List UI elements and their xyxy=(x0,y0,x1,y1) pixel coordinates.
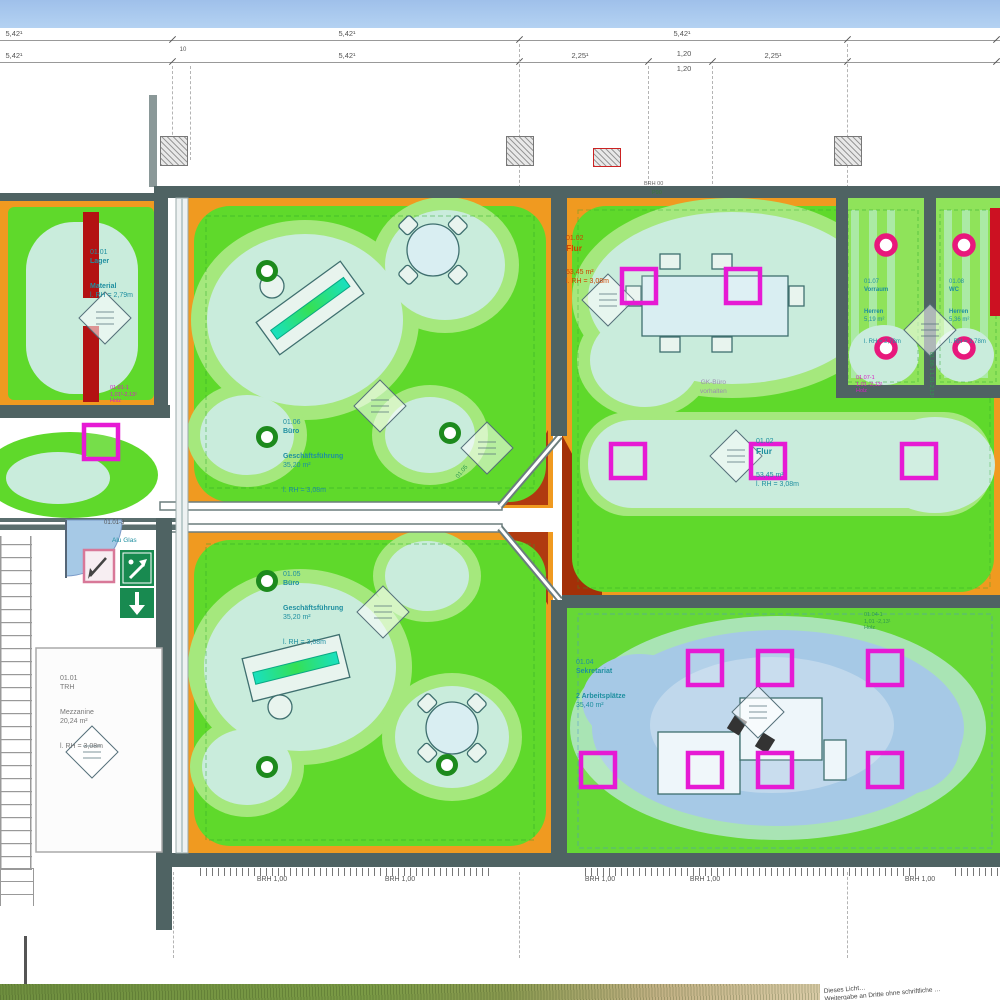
luminaire-donut-green xyxy=(259,263,276,280)
luminaire-square xyxy=(758,651,792,685)
extension-line xyxy=(519,44,520,198)
round-table xyxy=(426,702,478,754)
site-photo-strip xyxy=(0,984,820,1000)
stair-treads xyxy=(0,536,32,870)
dim-label: 5,42¹ xyxy=(338,29,355,38)
note-brh00: BRH 00 xyxy=(644,180,663,189)
luminaire-square xyxy=(868,753,902,787)
window-sill-label: BRH 1,00 xyxy=(905,876,935,883)
wall-material-label: Alu Glas xyxy=(112,537,137,546)
section-marker-red xyxy=(593,148,621,167)
wall-luminaire-pen xyxy=(84,550,114,582)
door-tag: 01.01-11,01¹-2,13¹Holz xyxy=(110,372,172,418)
extension-line xyxy=(648,66,649,184)
room-label-buero2: 01.05Büro Geschäftsführung35,20 m² l. RH… xyxy=(283,554,343,665)
dim-label: 5,42¹ xyxy=(5,51,22,60)
dim-label: 2,25¹ xyxy=(571,51,588,60)
window-sill-label: BRH 1,00 xyxy=(585,876,615,883)
luminaire-donut-green xyxy=(259,573,276,590)
chair xyxy=(268,695,292,719)
room-label-buero1: 01.06Büro Geschäftsführung35,20 m² l. RH… xyxy=(283,402,343,513)
luminaire-square xyxy=(688,753,722,787)
note-p90: P90 xyxy=(652,189,662,198)
dim-line-1 xyxy=(0,40,1000,41)
luminaire-square xyxy=(758,753,792,787)
stair-treads-lower xyxy=(0,868,34,906)
luminaire-square xyxy=(581,753,615,787)
window-sill-label: BRH 1,00 xyxy=(257,876,287,883)
lighting-plan-screenshot: 5,42¹ 5,42¹ 5,42¹ 5,42¹ 10 5,42¹ 2,25¹ 1… xyxy=(0,0,1000,1000)
window-sill-comb xyxy=(585,868,920,876)
room-label-vorraum: 01.07Vorraum Herren5,19 m² l. RH = 2,78m xyxy=(864,264,901,362)
luminaire-donut-green xyxy=(259,429,276,446)
luminaire-donut-green xyxy=(442,425,459,442)
stair-wall-lower xyxy=(156,868,172,930)
wall-stub xyxy=(149,95,157,187)
luminaire-donut-green xyxy=(439,757,456,774)
door-tag-vertical: 01.08-1 1,01-2,13¹ xyxy=(910,352,953,397)
extension-line xyxy=(847,872,848,958)
room-buero2-fill xyxy=(188,530,553,854)
dim-label: 1,20 xyxy=(677,64,692,73)
dim-label: 1,20 xyxy=(677,49,692,58)
window-sill-label: BRH 1,00 xyxy=(385,876,415,883)
section-marker xyxy=(834,136,862,166)
section-marker xyxy=(506,136,534,166)
watermark-note: Dieses Licht…Weitergabe an Dritte ohne s… xyxy=(822,963,942,1000)
floor-plan xyxy=(0,180,1000,870)
room-label-flur-top: 01.02Flur 53,45 m²l. RH = 3,08m xyxy=(566,218,609,303)
note-gk-buero: GK-Bürovorhalten xyxy=(700,362,727,413)
luminaire-donut-green xyxy=(259,759,276,776)
luminaire-square xyxy=(902,444,936,478)
luminaire-square xyxy=(84,425,118,459)
extension-line xyxy=(519,872,520,958)
left-corridor-fill xyxy=(0,432,158,518)
section-marker xyxy=(160,136,188,166)
room-label-lager: 01.01Lager Materiall. RH = 2,79m xyxy=(90,232,133,317)
exit-sign-runner xyxy=(120,550,154,586)
extension-line xyxy=(190,66,191,160)
door-leaf-red xyxy=(990,208,1000,316)
door-tag: 01.04-11,01 -2,13¹Holz xyxy=(864,599,926,645)
wall-tag: 01.01-3 xyxy=(104,519,124,528)
dim-line-2 xyxy=(0,62,1000,63)
luminaire-square xyxy=(726,269,760,303)
shelf-bar xyxy=(83,326,99,402)
luminaire-square xyxy=(611,444,645,478)
extension-line xyxy=(712,66,713,184)
room-label-sekretariat: 01.04Sekretariat 2 Arbeitsplätze35,40 m² xyxy=(576,642,626,727)
luminaire-square xyxy=(622,269,656,303)
grass-texture xyxy=(0,984,820,1000)
room-label-trh: 01.01TRH Mezzanine20,24 m² l. RH = 3,08m xyxy=(60,658,103,769)
luminaire-donut-pink xyxy=(877,236,895,254)
room-label-flur-mid: 01.02Flur 53,45 m²l. RH = 3,08m xyxy=(756,421,799,506)
room-label-wc: 01.08WC Herren5,36 m² l. RH = 2,78m xyxy=(949,264,986,362)
luminaire-square xyxy=(688,651,722,685)
dim-label: 10 xyxy=(180,47,187,53)
extension-line xyxy=(173,872,174,958)
sky-band xyxy=(0,0,1000,28)
window-sill-label: BRH 1,00 xyxy=(690,876,720,883)
dim-label: 5,42¹ xyxy=(338,51,355,60)
dim-label: 2,25¹ xyxy=(764,51,781,60)
window-sill-comb xyxy=(200,868,490,876)
dim-label: 5,42¹ xyxy=(5,29,22,38)
wall-segment-lower-left xyxy=(24,936,27,988)
dim-label: 5,42¹ xyxy=(673,29,690,38)
exit-sign-luminaires xyxy=(84,550,154,618)
exit-sign-down-arrow xyxy=(120,588,154,618)
luminaire-square xyxy=(868,651,902,685)
window-sill-comb xyxy=(955,868,1000,876)
extension-line xyxy=(847,44,848,198)
luminaire-donut-pink xyxy=(955,236,973,254)
round-table xyxy=(407,224,459,276)
